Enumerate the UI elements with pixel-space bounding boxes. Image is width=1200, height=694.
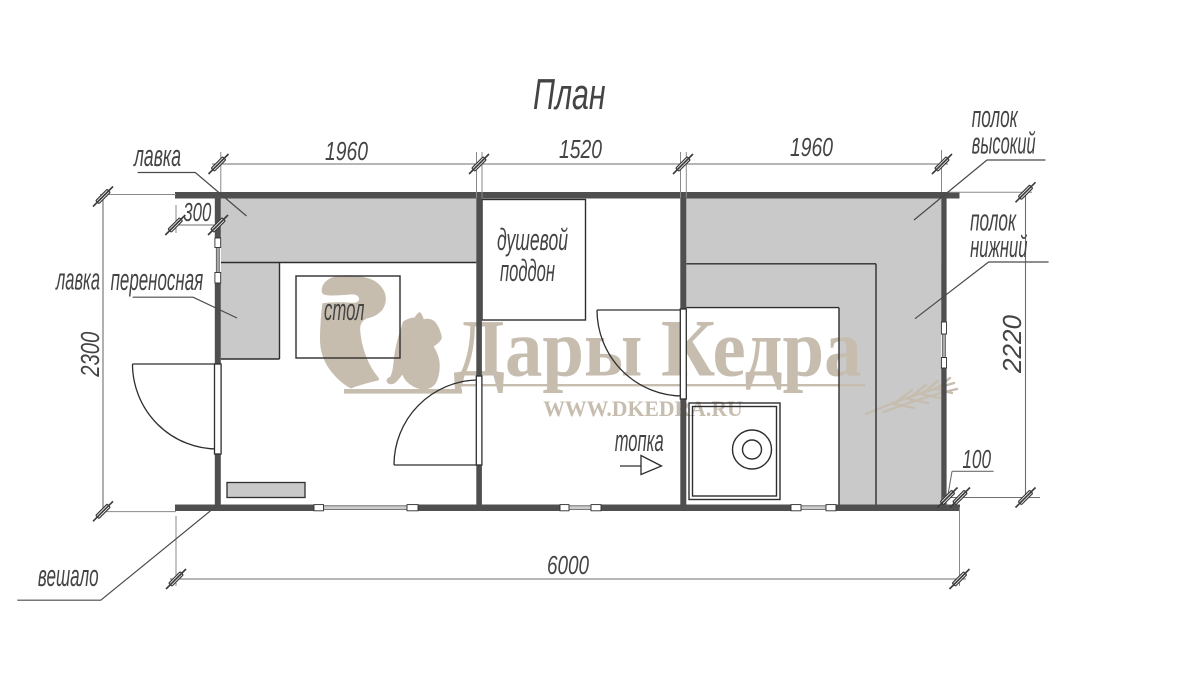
svg-text:2300: 2300 bbox=[75, 331, 105, 377]
svg-text:100: 100 bbox=[962, 444, 991, 474]
svg-text:1960: 1960 bbox=[325, 136, 368, 166]
svg-text:2220: 2220 bbox=[997, 314, 1027, 374]
svg-text:переносная: переносная bbox=[111, 262, 204, 297]
svg-text:1960: 1960 bbox=[790, 132, 833, 162]
svg-text:лавка: лавка bbox=[133, 138, 181, 173]
svg-text:поддон: поддон bbox=[500, 253, 555, 288]
svg-text:1520: 1520 bbox=[559, 134, 602, 164]
svg-text:Дары Кедра: Дары Кедра bbox=[454, 303, 862, 394]
svg-text:300: 300 bbox=[183, 197, 211, 227]
svg-text:высокий: высокий bbox=[972, 126, 1036, 161]
svg-text:вешало: вешало bbox=[38, 558, 99, 593]
svg-text:лавка: лавка bbox=[55, 262, 100, 297]
svg-text:нижний: нижний bbox=[970, 229, 1027, 264]
svg-text:топка: топка bbox=[615, 423, 664, 458]
svg-text:стол: стол bbox=[324, 292, 365, 327]
svg-text:6000: 6000 bbox=[547, 550, 589, 580]
svg-text:План: План bbox=[533, 70, 606, 119]
svg-text:WWW.DKEDRA.RU: WWW.DKEDRA.RU bbox=[543, 396, 743, 421]
svg-text:душевой: душевой bbox=[497, 222, 568, 257]
